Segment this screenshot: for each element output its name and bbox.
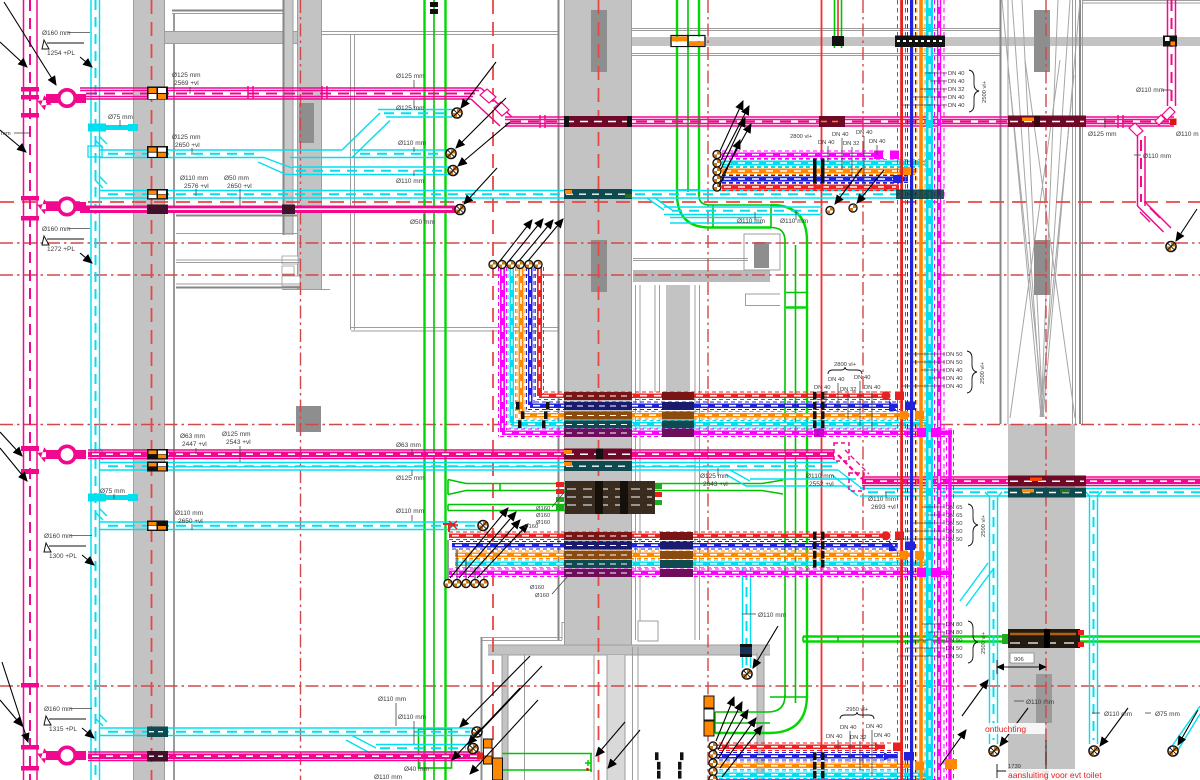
svg-text:Ø125 mm: Ø125 mm [172,72,201,79]
svg-text:Ø63 mm: Ø63 mm [180,433,205,440]
svg-text:2552 +vl: 2552 +vl [809,481,834,488]
svg-text:Ø110 mm: Ø110 mm [780,218,808,225]
svg-text:2650 +vl: 2650 +vl [175,142,200,149]
svg-text:Ø50 mm: Ø50 mm [224,175,249,182]
svg-text:1272 +PL: 1272 +PL [47,246,75,253]
svg-text:2650 +vl: 2650 +vl [227,183,252,190]
svg-text:1300 +PL: 1300 +PL [49,553,77,560]
svg-text:DN 80: DN 80 [946,622,962,628]
svg-text:Ø160 mm: Ø160 mm [44,533,73,540]
svg-text:DN 40: DN 40 [828,377,844,383]
svg-text:2643 +vl: 2643 +vl [703,481,728,488]
svg-text:DN 65: DN 65 [946,513,962,519]
svg-text:1315 +PL: 1315 +PL [49,726,77,733]
svg-text:Ø160: Ø160 [536,506,550,512]
svg-text:DN 40: DN 40 [948,79,964,85]
svg-text:DN 40: DN 40 [948,95,964,101]
svg-text:DN 65: DN 65 [946,505,962,511]
svg-text:Ø40 mm: Ø40 mm [404,766,429,773]
svg-text:2500 vl+: 2500 vl+ [981,514,987,537]
svg-text:2650 +vl: 2650 +vl [178,518,203,525]
svg-text:DN 50: DN 50 [946,360,962,366]
svg-text:Ø110 mm: Ø110 mm [175,510,203,517]
svg-text:Ø75 mm: Ø75 mm [1155,711,1180,718]
svg-text:Ø160: Ø160 [530,585,544,591]
svg-text:Ø125 mm: Ø125 mm [1088,131,1117,138]
svg-text:Ø110 mm: Ø110 mm [737,218,765,225]
svg-text:DN 40: DN 40 [856,130,872,136]
svg-text:1254 +PL: 1254 +PL [47,50,75,57]
svg-text:Ø160: Ø160 [524,524,538,530]
svg-text:DN 40: DN 40 [874,733,890,739]
svg-text:Ø110 mm: Ø110 mm [378,696,406,703]
svg-text:DN 50: DN 50 [946,638,962,644]
svg-text:Ø75 mm: Ø75 mm [108,114,133,121]
svg-text:Ø160: Ø160 [535,593,549,599]
svg-text:2576 +vl: 2576 +vl [184,183,209,190]
svg-text:Ø160 mm: Ø160 mm [44,706,73,713]
svg-text:DN 50: DN 50 [946,646,962,652]
svg-text:Ø110 mm: Ø110 mm [868,496,896,503]
svg-text:Ø110 mm: Ø110 mm [1104,711,1132,718]
svg-text:DN 40: DN 40 [948,103,964,109]
svg-text:DN 50: DN 50 [946,521,962,527]
svg-text:DN 32: DN 32 [850,735,866,741]
svg-text:DN 50: DN 50 [946,352,962,358]
svg-text:2800 vl+: 2800 vl+ [790,134,813,140]
svg-text:DN 50: DN 50 [946,654,962,660]
svg-text:DN 40: DN 40 [854,375,870,381]
svg-text:906: 906 [1014,657,1024,663]
svg-text:DN 80: DN 80 [946,630,962,636]
svg-text:DN 40: DN 40 [832,132,848,138]
svg-text:DN 40: DN 40 [869,139,885,145]
svg-text:DN 40: DN 40 [864,385,880,391]
svg-text:2500 vl+: 2500 vl+ [982,80,988,103]
svg-text:2500 vl+: 2500 vl+ [980,361,986,384]
svg-text:Ø110 mm: Ø110 mm [1136,87,1164,94]
svg-text:Ø110 mm: Ø110 mm [758,612,786,619]
svg-text:Ø110 mm: Ø110 mm [396,178,424,185]
svg-text:Ø125 mm: Ø125 mm [700,473,729,480]
svg-text:DN 40: DN 40 [818,140,834,146]
svg-text:2569 +vl: 2569 +vl [174,80,199,87]
svg-text:DN 40: DN 40 [814,385,830,391]
svg-text:ontluchting: ontluchting [985,724,1026,734]
svg-text:DN 40: DN 40 [946,368,962,374]
svg-text:Ø125 mm: Ø125 mm [222,431,251,438]
svg-text:Ø75 mm: Ø75 mm [100,488,125,495]
svg-text:DN 40: DN 40 [948,71,964,77]
svg-text:Ø110 m: Ø110 m [1176,131,1199,138]
svg-text:Ø110 mm: Ø110 mm [806,473,834,480]
svg-text:Ø110 mm: Ø110 mm [1143,153,1171,160]
svg-text:2543 +vl: 2543 +vl [226,439,251,446]
svg-text:aansluiting voor evt toilet: aansluiting voor evt toilet [1008,770,1102,780]
svg-text:Ø160: Ø160 [536,513,550,519]
svg-text:Ø110 mm: Ø110 mm [374,774,402,780]
svg-text:Ø125 mm: Ø125 mm [396,475,425,482]
svg-text:Ø125 mm: Ø125 mm [396,105,425,112]
svg-text:DN 40: DN 40 [866,724,882,730]
svg-text:Ø160 mm: Ø160 mm [42,30,71,37]
svg-text:DN 32: DN 32 [840,387,856,393]
svg-text:DN 40: DN 40 [946,384,962,390]
svg-text:Ø50 mm: Ø50 mm [410,219,435,226]
svg-text:Ø110 mm: Ø110 mm [1026,699,1054,706]
svg-text:DN 50: DN 50 [946,529,962,535]
svg-text:Ø110 mm: Ø110 mm [398,140,426,147]
svg-text:mm: mm [1,131,11,137]
svg-text:DN 32: DN 32 [843,141,859,147]
svg-text:Ø110 mm: Ø110 mm [398,714,426,721]
svg-text:Ø63 mm: Ø63 mm [396,442,421,449]
svg-text:2693 +vl: 2693 +vl [871,504,896,511]
svg-text:Ø110 mm: Ø110 mm [180,175,208,182]
svg-text:Ø125 mm: Ø125 mm [172,134,201,141]
svg-text:2500 vl+: 2500 vl+ [981,631,987,654]
svg-text:2447 +vl: 2447 +vl [182,441,207,448]
svg-text:DN 40: DN 40 [840,725,856,731]
svg-text:Ø110 mm: Ø110 mm [396,508,424,515]
svg-text:DN 40: DN 40 [946,376,962,382]
svg-text:Ø125 mm: Ø125 mm [396,73,425,80]
svg-text:Ø160 mm: Ø160 mm [42,226,71,233]
svg-text:DN 32: DN 32 [948,87,964,93]
svg-text:DN 50: DN 50 [946,537,962,543]
svg-text:DN 40: DN 40 [826,734,842,740]
